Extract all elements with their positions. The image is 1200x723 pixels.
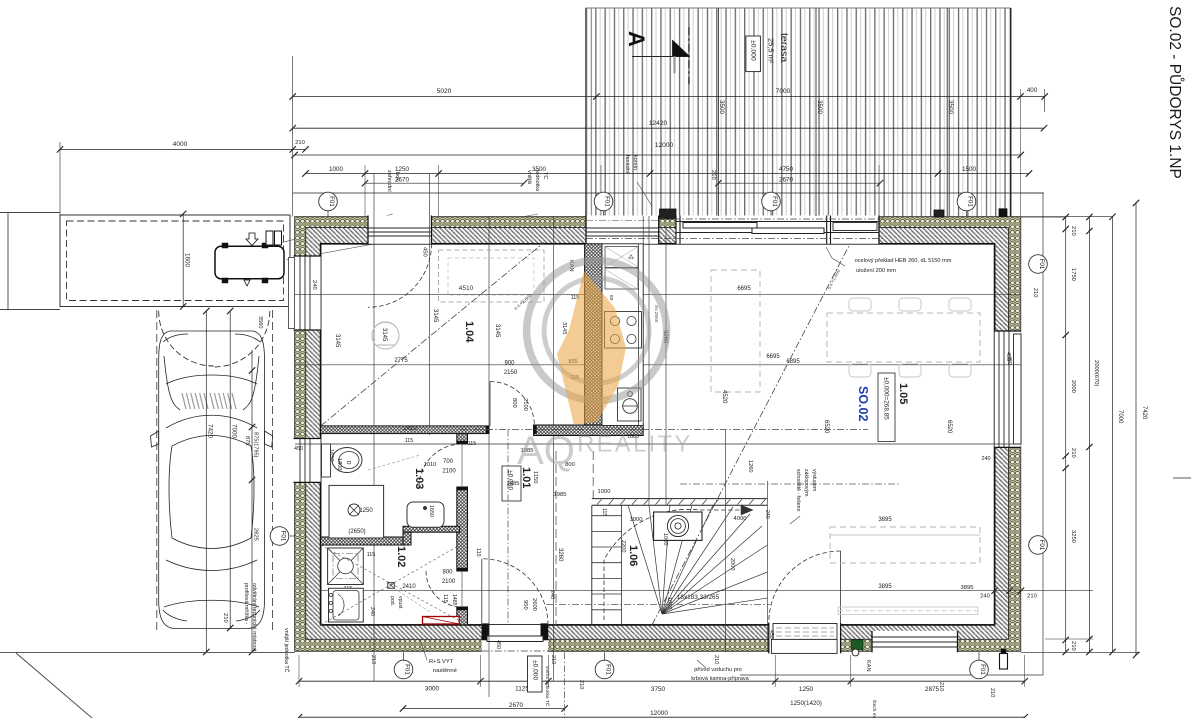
- svg-text:(2650): (2650): [348, 529, 365, 535]
- svg-text:výstupem: výstupem: [811, 469, 817, 491]
- svg-text:F01: F01: [328, 196, 335, 207]
- svg-text:±0,000: ±0,000: [750, 40, 757, 61]
- svg-text:schodiště - řešeno: schodiště - řešeno: [795, 469, 801, 512]
- svg-text:3145: 3145: [334, 334, 340, 348]
- svg-text:240: 240: [369, 607, 375, 616]
- svg-text:KAN: KAN: [865, 660, 871, 672]
- svg-text:záklopovým: záklopovým: [803, 469, 809, 496]
- svg-text:fasádní: fasádní: [624, 155, 630, 174]
- svg-text:4000: 4000: [173, 141, 188, 148]
- svg-text:odvětrání technické místnosti: odvětrání technické místnosti: [251, 583, 257, 653]
- svg-text:450: 450: [1006, 356, 1012, 365]
- svg-text:TC: TC: [542, 172, 548, 179]
- svg-text:210: 210: [550, 655, 556, 664]
- svg-text:240: 240: [980, 594, 990, 600]
- svg-text:2600: 2600: [531, 598, 537, 611]
- svg-text:1500: 1500: [962, 166, 977, 173]
- svg-text:115: 115: [468, 441, 477, 447]
- svg-text:±0,000=268,85: ±0,000=268,85: [883, 377, 890, 420]
- svg-text:210: 210: [1070, 226, 1076, 236]
- svg-text:REALITY: REALITY: [577, 431, 692, 457]
- svg-text:3895: 3895: [878, 584, 892, 590]
- svg-text:SO.02: SO.02: [856, 386, 870, 421]
- svg-text:6520: 6520: [946, 420, 952, 434]
- svg-text:1000: 1000: [662, 533, 668, 545]
- svg-text:1000: 1000: [666, 597, 672, 609]
- svg-text:D: D: [345, 461, 351, 465]
- svg-text:1250: 1250: [359, 508, 373, 514]
- svg-text:1250: 1250: [799, 686, 814, 693]
- svg-text:115: 115: [601, 508, 607, 516]
- svg-text:2410: 2410: [403, 426, 417, 432]
- svg-text:900: 900: [504, 361, 515, 367]
- svg-text:115: 115: [442, 594, 448, 603]
- svg-text:2875: 2875: [925, 686, 940, 693]
- svg-text:1250(1420): 1250(1420): [790, 700, 822, 707]
- svg-text:komín: komín: [632, 155, 638, 170]
- svg-text:210: 210: [222, 613, 228, 623]
- svg-text:210: 210: [295, 140, 305, 146]
- svg-text:zahradní: zahradní: [386, 170, 392, 192]
- svg-text:2100: 2100: [442, 469, 456, 475]
- svg-text:450: 450: [422, 247, 428, 257]
- svg-text:F01: F01: [280, 531, 287, 542]
- svg-text:F01: F01: [979, 664, 986, 675]
- svg-text:210: 210: [1070, 448, 1076, 458]
- svg-text:115: 115: [405, 438, 414, 444]
- svg-text:2670: 2670: [509, 702, 524, 709]
- svg-text:F01: F01: [1038, 259, 1045, 270]
- svg-text:2200: 2200: [620, 540, 626, 552]
- svg-text:7420: 7420: [1141, 406, 1147, 420]
- svg-text:vpust: vpust: [397, 596, 403, 609]
- svg-text:240: 240: [982, 456, 991, 462]
- svg-text:7000: 7000: [1117, 410, 1123, 424]
- svg-text:štech maľ v: štech maľ v: [871, 700, 877, 718]
- svg-text:2000: 2000: [1070, 380, 1076, 393]
- svg-text:1260: 1260: [747, 460, 753, 472]
- svg-text:210: 210: [370, 655, 376, 664]
- svg-text:ocelový překlad HEB 260, dL 51: ocelový překlad HEB 260, dL 5150 mm: [855, 258, 952, 264]
- svg-text:12420: 12420: [649, 120, 668, 127]
- svg-text:box: box: [394, 172, 400, 181]
- svg-text:210: 210: [1032, 288, 1038, 297]
- svg-text:3145: 3145: [494, 324, 500, 338]
- svg-text:krbová kamna-příprava: krbová kamna-příprava: [691, 676, 749, 682]
- svg-text:3145: 3145: [432, 309, 438, 323]
- svg-text:240: 240: [311, 280, 317, 290]
- svg-text:115: 115: [475, 548, 481, 557]
- svg-text:450: 450: [495, 640, 501, 649]
- svg-text:3000: 3000: [425, 686, 440, 693]
- svg-text:1.05: 1.05: [897, 383, 909, 404]
- svg-text:800: 800: [511, 398, 517, 408]
- svg-text:800: 800: [442, 570, 453, 576]
- svg-text:210: 210: [1027, 594, 1037, 600]
- svg-text:1800: 1800: [336, 458, 342, 470]
- svg-text:F01: F01: [605, 664, 612, 675]
- svg-text:F01: F01: [404, 664, 411, 675]
- svg-text:2100: 2100: [522, 398, 528, 411]
- svg-text:2625: 2625: [253, 528, 259, 541]
- svg-text:2150: 2150: [504, 370, 518, 376]
- svg-text:700: 700: [443, 459, 454, 465]
- svg-text:SO.02 - PŮDORYS 1.NP: SO.02 - PŮDORYS 1.NP: [1166, 6, 1184, 179]
- svg-text:210: 210: [578, 680, 584, 689]
- svg-text:210: 210: [938, 682, 944, 691]
- svg-text:3145: 3145: [561, 322, 567, 334]
- svg-text:7420: 7420: [207, 424, 214, 439]
- svg-text:18x183,33/265: 18x183,33/265: [677, 594, 720, 601]
- svg-text:1.04: 1.04: [463, 321, 475, 343]
- svg-text:4V.2655: 4V.2655: [653, 305, 659, 323]
- svg-text:25,5 m²: 25,5 m²: [767, 38, 776, 64]
- svg-text:875(1795): 875(1795): [253, 432, 259, 458]
- svg-text:4000: 4000: [734, 516, 747, 522]
- svg-text:3145: 3145: [381, 328, 387, 342]
- svg-text:210: 210: [989, 688, 995, 697]
- svg-text:nastěnné: nastěnné: [433, 668, 457, 674]
- svg-text:±0,000: ±0,000: [532, 660, 539, 680]
- svg-text:1000: 1000: [630, 517, 643, 523]
- svg-text:profilová mřížka -: profilová mřížka -: [243, 583, 249, 625]
- svg-text:1.03: 1.03: [413, 468, 425, 489]
- svg-text:950: 950: [522, 600, 528, 610]
- svg-text:1.06: 1.06: [627, 545, 639, 566]
- svg-text:400: 400: [1027, 87, 1038, 94]
- svg-text:4510: 4510: [459, 285, 474, 292]
- svg-text:2775: 2775: [394, 358, 408, 364]
- svg-text:1600: 1600: [184, 253, 191, 268]
- svg-text:240: 240: [764, 510, 770, 519]
- svg-text:1650: 1650: [328, 449, 334, 461]
- svg-text:3250: 3250: [1070, 530, 1076, 543]
- svg-text:60: 60: [608, 295, 614, 301]
- svg-text:3750: 3750: [651, 686, 666, 693]
- svg-text:210: 210: [710, 170, 716, 180]
- svg-text:3560: 3560: [257, 316, 263, 328]
- svg-text:3260: 3260: [557, 548, 563, 562]
- svg-text:450: 450: [768, 630, 774, 639]
- svg-text:1650: 1650: [428, 505, 434, 517]
- svg-text:1010: 1010: [424, 462, 436, 468]
- svg-text:AQ: AQ: [517, 429, 575, 473]
- svg-text:3895: 3895: [961, 585, 974, 591]
- svg-text:875: 875: [244, 436, 250, 445]
- svg-text:3895: 3895: [878, 517, 892, 523]
- svg-text:12000: 12000: [650, 710, 668, 717]
- svg-text:3500: 3500: [718, 100, 725, 115]
- svg-text:6520: 6520: [823, 420, 829, 434]
- svg-text:7000: 7000: [776, 88, 791, 95]
- svg-text:1.02: 1.02: [395, 546, 407, 567]
- svg-text:R+S VYT: R+S VYT: [429, 659, 454, 665]
- svg-text:4520: 4520: [721, 390, 727, 404]
- svg-text:2000: 2000: [729, 558, 735, 570]
- svg-text:3500: 3500: [947, 100, 954, 115]
- svg-text:2100: 2100: [442, 579, 456, 585]
- svg-text:terasa: terasa: [778, 33, 790, 62]
- svg-text:210: 210: [1070, 641, 1076, 651]
- svg-text:1485: 1485: [451, 594, 457, 606]
- svg-text:6895: 6895: [786, 359, 800, 365]
- svg-text:1985: 1985: [507, 481, 520, 487]
- svg-text:F01: F01: [771, 196, 778, 207]
- svg-text:5020: 5020: [437, 88, 452, 95]
- svg-text:4750: 4750: [779, 166, 794, 173]
- svg-text:210: 210: [713, 655, 719, 664]
- svg-text:jednotka: jednotka: [534, 169, 540, 192]
- svg-text:2670: 2670: [779, 177, 794, 184]
- svg-text:F01: F01: [604, 196, 611, 207]
- svg-text:6695: 6695: [737, 286, 751, 292]
- svg-text:240: 240: [549, 590, 555, 599]
- svg-text:3500: 3500: [816, 100, 823, 115]
- svg-text:6695: 6695: [766, 354, 780, 360]
- svg-text:1985: 1985: [554, 492, 567, 498]
- svg-text:1000: 1000: [598, 489, 611, 495]
- svg-text:450: 450: [294, 446, 303, 452]
- svg-text:7000: 7000: [231, 424, 238, 439]
- svg-text:F01: F01: [967, 196, 974, 207]
- svg-text:pod.: pod.: [389, 596, 395, 606]
- svg-text:vnější jednotka TČ: vnější jednotka TČ: [283, 628, 290, 673]
- svg-text:F01: F01: [1038, 540, 1045, 551]
- svg-text:vnější: vnější: [526, 170, 532, 185]
- svg-text:115: 115: [367, 552, 376, 558]
- svg-text:A: A: [624, 31, 649, 47]
- svg-text:⁂: ⁂: [628, 253, 635, 261]
- svg-text:2410: 2410: [402, 584, 416, 590]
- svg-text:vnitřní jednotka TČ: vnitřní jednotka TČ: [544, 666, 551, 707]
- svg-text:12000: 12000: [655, 142, 674, 149]
- svg-text:uložení 200 mm: uložení 200 mm: [856, 268, 896, 274]
- svg-text:1750: 1750: [1070, 268, 1076, 281]
- svg-text:1000: 1000: [329, 166, 344, 173]
- svg-text:2000(670): 2000(670): [1093, 360, 1099, 386]
- svg-text:přívod vzduchu pro: přívod vzduchu pro: [694, 667, 742, 673]
